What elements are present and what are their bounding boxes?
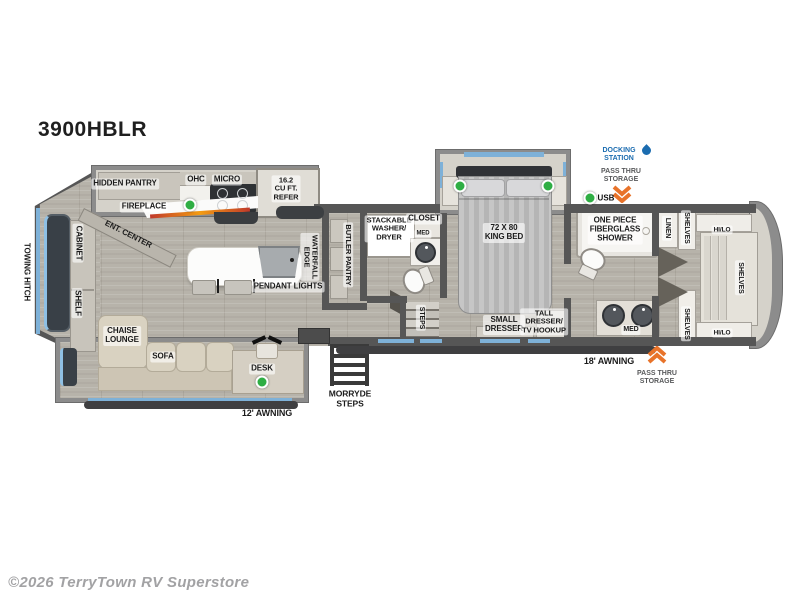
label-pass-thru-top: PASS THRU STORAGE	[601, 168, 641, 184]
label-fireplace: FIREPLACE	[120, 202, 168, 213]
top-wall	[566, 204, 756, 213]
label-cabinet: CABINET	[73, 224, 84, 263]
window-strip	[528, 339, 550, 343]
label-steps: STEPS	[416, 305, 426, 331]
label-butler-pantry: BUTLER PANTRY	[343, 222, 353, 287]
label-hilo-top: HI/LO	[712, 225, 733, 234]
pass-thru-arrow-up-icon	[646, 346, 668, 364]
wardrobe-shelf-edge	[704, 236, 711, 320]
morryde-step	[334, 372, 365, 376]
top-wall	[314, 204, 440, 213]
morryde-step	[334, 354, 365, 358]
label-waterfall-edge: WATERFALL EDGE	[301, 233, 320, 281]
usb-led-dot	[584, 192, 597, 205]
burner	[237, 188, 248, 199]
entry-landing	[298, 328, 330, 344]
label-desk: DESK	[249, 364, 275, 375]
pendant-light	[192, 280, 216, 295]
label-med: MED	[414, 230, 431, 239]
morryde-step	[334, 363, 365, 367]
counter-hutch	[276, 206, 324, 219]
pillow	[461, 179, 505, 197]
label-hilo-bottom: HI/LO	[712, 328, 733, 337]
label-docking-station: DOCKING STATION	[602, 147, 635, 163]
label-hidden-pantry: HIDDEN PANTRY	[91, 179, 159, 190]
front-window-band	[36, 208, 40, 334]
burner	[217, 188, 228, 199]
island-sink	[258, 246, 300, 278]
floorplan-image: 3900HBLR ©2026 TerryTown RV Superstore	[0, 0, 800, 600]
label-pendant-lights: PENDANT LIGHTS	[252, 282, 325, 293]
water-drop-icon	[640, 144, 653, 157]
label-shelves-top: SHELVES	[681, 210, 691, 245]
label-shelves-bottom: SHELVES	[681, 306, 691, 341]
bedroom-window-strip	[464, 152, 544, 157]
label-shelves-rear: SHELVES	[735, 260, 745, 295]
copyright-text: ©2026 TerryTown RV Superstore	[8, 574, 249, 591]
label-chaise-lounge: CHAISE LOUNGE	[103, 326, 141, 346]
page-title: 3900HBLR	[38, 118, 147, 142]
pantry-wall	[322, 213, 329, 310]
bath-bedroom-wall	[440, 213, 447, 298]
shower-drain	[642, 227, 650, 235]
label-king-bed: 72 X 80 KING BED	[483, 223, 525, 243]
window-strip	[378, 339, 414, 343]
pantry-bottom-wall	[322, 303, 367, 310]
vanity-sink	[602, 304, 625, 327]
label-shelf: SHELF	[72, 288, 83, 318]
desk-chair-seat	[256, 343, 278, 359]
label-awning-18: 18' AWNING	[582, 355, 636, 367]
label-usb: USB	[598, 193, 615, 202]
label-shower: ONE PIECE FIBERGLASS SHOWER	[588, 216, 643, 245]
faucet-dot	[290, 258, 294, 262]
label-ohc: OHC	[185, 175, 206, 186]
bed-led-dot	[542, 180, 555, 193]
bath-closet-wall	[652, 204, 659, 256]
bed-led-dot	[454, 180, 467, 193]
label-sofa: SOFA	[150, 352, 175, 363]
wardrobe-shelf-edge	[712, 236, 719, 320]
morryde-step	[334, 381, 365, 385]
label-small-dresser: SMALL DRESSER	[483, 315, 525, 335]
range-front	[214, 212, 258, 224]
label-closet: CLOSET	[406, 214, 442, 225]
label-tall-dresser: TALL DRESSER/ TV HOOKUP	[520, 308, 568, 335]
label-micro: MICRO	[212, 175, 242, 186]
label-towing-hitch: TOWING HITCH	[21, 241, 32, 303]
label-med-rear: MED	[621, 325, 640, 335]
bed-seam	[459, 198, 549, 200]
pendant-stem	[217, 279, 219, 293]
bedroom-bath-wall	[564, 204, 571, 264]
label-morryde-steps: MORRYDE STEPS	[327, 388, 373, 409]
label-pass-thru-bottom: PASS THRU STORAGE	[637, 370, 677, 386]
label-refer: 16.2 CU FT. REFER	[272, 175, 301, 202]
slide-window	[60, 348, 77, 386]
label-awning-12: 12' AWNING	[240, 407, 294, 419]
sofa-cushion	[206, 342, 234, 372]
awning-18-bar	[336, 346, 656, 354]
window-strip	[420, 339, 442, 343]
sofa-cushion	[176, 342, 206, 372]
vanity-sink	[631, 304, 654, 327]
wardrobe-shelf-edge	[720, 236, 727, 320]
label-linen: LINEN	[662, 216, 672, 241]
front-window	[44, 214, 71, 332]
window-strip	[480, 339, 520, 343]
desk-led-dot	[256, 376, 269, 389]
bath-closet-wall	[652, 296, 659, 342]
pendant-light	[224, 280, 252, 295]
stove-led-dot	[184, 199, 197, 212]
steps-wall	[400, 298, 406, 340]
